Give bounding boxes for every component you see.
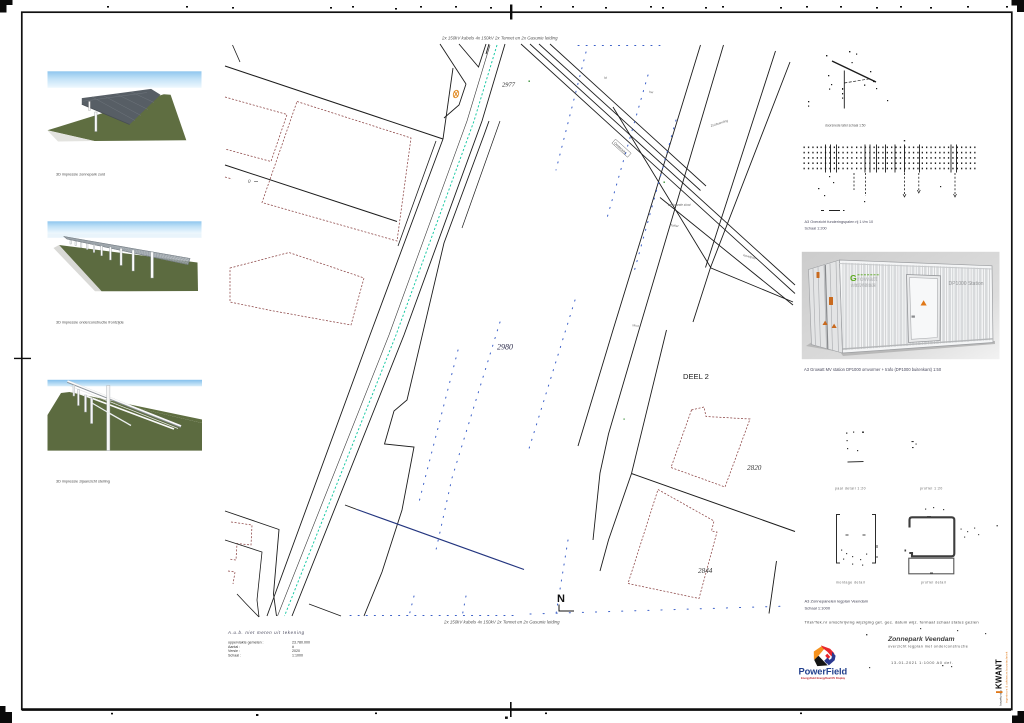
svg-text:montage detail: montage detail [836, 581, 865, 585]
svg-text:Schaal 1:200: Schaal 1:200 [805, 227, 827, 231]
svg-text:DP1000 Station: DP1000 Station [949, 281, 984, 287]
svg-text:古瑞瓦特新能源: 古瑞瓦特新能源 [851, 283, 877, 288]
svg-text:A3 Growatt MV station DP1000: A3 Growatt MV station DP1000 omvormer + … [804, 367, 942, 372]
svg-text:A3 Zonnepanelen legplan Veend: A3 Zonnepanelen legplan Veendam [805, 599, 869, 604]
svg-text:2977: 2977 [502, 82, 516, 89]
svg-text:G: G [850, 273, 857, 283]
svg-text:PowerField: PowerField [799, 667, 848, 677]
svg-text:A.u.b. niet meten uit tekening: A.u.b. niet meten uit tekening [227, 630, 305, 635]
svg-text:2x 150kV kabels 4x 150kV 2x T: 2x 150kV kabels 4x 150kV 2x Tennet en 2x… [441, 36, 558, 41]
svg-text:doorsnede tafel schaal 1:50: doorsnede tafel schaal 1:50 [825, 124, 866, 128]
svg-text:3D impressie onderconstructie: 3D impressie onderconstructie frontzijde [56, 321, 124, 325]
svg-text:DEEL 2: DEEL 2 [683, 372, 709, 381]
svg-text:Schaal 1:1000: Schaal 1:1000 [805, 606, 831, 611]
svg-text:paal detail 1:20: paal detail 1:20 [835, 487, 866, 491]
svg-text:2820: 2820 [747, 464, 762, 472]
svg-text:bestaande sloot: bestaande sloot [668, 203, 691, 207]
svg-text:N: N [557, 593, 565, 605]
svg-text:EnergyField EnergyDeal NV Disp: EnergyField EnergyDeal NV Display [801, 676, 846, 680]
svg-text:13-01-2021 1:1000 A0 de: 13-01-2021 1:1000 A0 def. [891, 660, 953, 665]
svg-text:ingenieurs & adviseurs bouwtec: ingenieurs & adviseurs bouwtechniek [1004, 651, 1008, 703]
svg-text:3D impressie zijaanzicht stell: 3D impressie zijaanzicht stelling [56, 480, 110, 484]
svg-text:rowatt: rowatt [857, 276, 878, 283]
svg-text:Zonnepark Veendam: Zonnepark Veendam [887, 636, 955, 643]
svg-text:2980: 2980 [497, 343, 513, 352]
svg-text:23.780.000: 23.780.000 [292, 641, 310, 645]
svg-text:profiel 1:20: profiel 1:20 [920, 487, 943, 491]
svg-text:ht: ht [604, 76, 607, 80]
svg-text:Titel/Tek.nr omschrijving wij: Titel/Tek.nr omschrijving wijziging get.… [805, 620, 979, 625]
svg-text:2x 150kV kabels 4x 150kV 2x T: 2x 150kV kabels 4x 150kV 2x Tennet en 2x… [443, 620, 560, 625]
svg-text:2844: 2844 [698, 567, 713, 575]
svg-text:3D impressie zonnepark zuid: 3D impressie zonnepark zuid [56, 173, 105, 177]
svg-text:profiel detail: profiel detail [921, 581, 946, 585]
svg-text:Schaal :: Schaal : [228, 653, 241, 657]
svg-text:overzicht legplan met ondercon: overzicht legplan met onderconstructie [888, 645, 968, 649]
svg-text:1:1000: 1:1000 [292, 653, 303, 657]
svg-text:KWANT: KWANT [995, 659, 1004, 689]
svg-text:A3 Overzicht funderingspalen: A3 Overzicht funderingspalen rij 1 t/m 1… [805, 220, 874, 224]
